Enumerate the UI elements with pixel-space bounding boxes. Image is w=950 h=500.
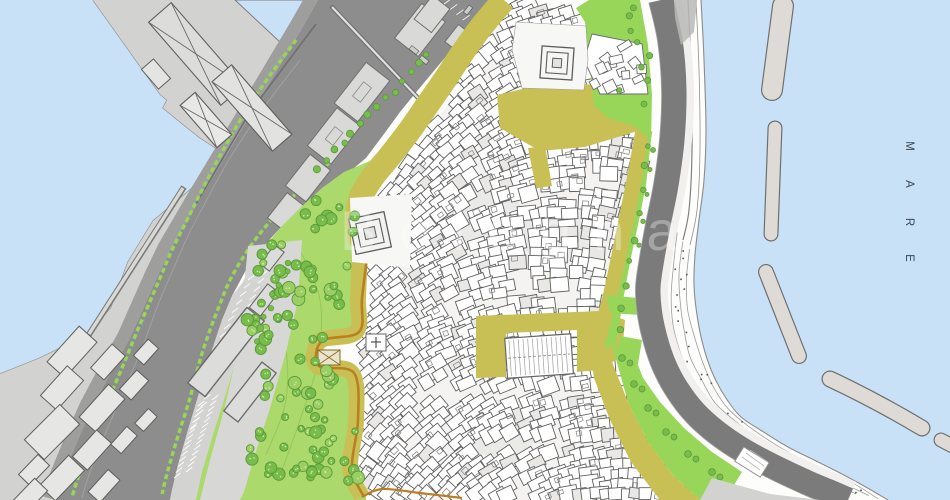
svg-text:Bologna: Bologna [340,199,700,262]
svg-text:R: R [903,218,915,226]
svg-text:E: E [903,254,915,262]
svg-text:M: M [903,141,915,151]
svg-text:A: A [903,180,915,188]
